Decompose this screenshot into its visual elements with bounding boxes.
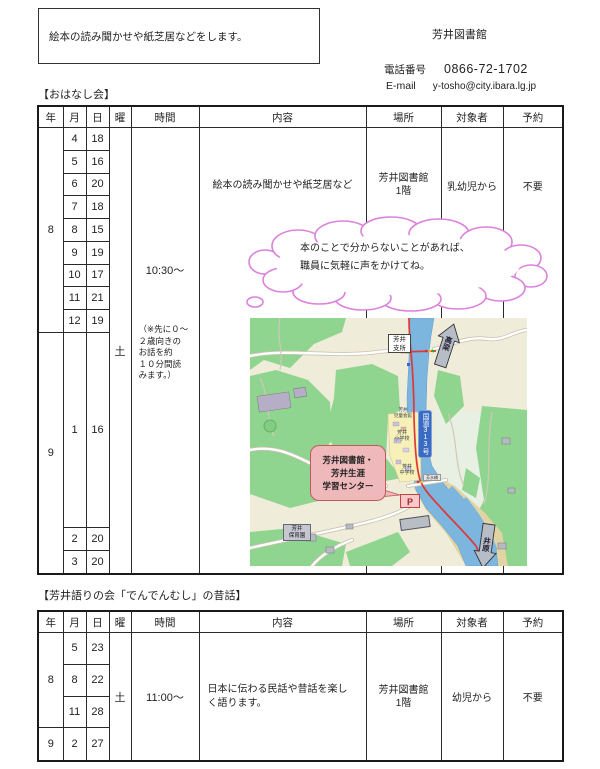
- col-time: 時間: [131, 611, 199, 633]
- email-address: y-tosho@city.ibara.lg.jp: [433, 81, 536, 92]
- route-313-text: 国道313号: [420, 413, 430, 455]
- month-cell: 11: [63, 696, 86, 728]
- page: { "header": { "notice_box": "絵本の読み聞かせや紙芝…: [0, 0, 600, 769]
- col-place: 場所: [366, 611, 441, 633]
- day-cell: 19: [86, 241, 109, 264]
- month-cell: 5: [63, 633, 86, 665]
- audience-cell: 幼児から: [441, 633, 503, 762]
- section-title-ohanashi: 【おはなし会】: [38, 86, 115, 102]
- content-cell: 日本に伝わる民話や昔話を楽し く語ります。: [199, 633, 366, 762]
- col-place: 場所: [366, 106, 441, 128]
- day-cell: 20: [86, 527, 109, 550]
- phone-row: 電話番号 0866-72-1702: [384, 62, 528, 77]
- month-cell: 10: [63, 264, 86, 287]
- junior-high-label: 芳井 中学校: [392, 464, 422, 476]
- denden-table: 年 月 日 曜 時間 内容 場所 対象者 予約 8 5 23 土 11:00～ …: [37, 610, 564, 762]
- month-cell: 3: [63, 550, 86, 574]
- parking-label: P: [400, 494, 420, 508]
- notice-text: 絵本の読み聞かせや紙芝居などをします。: [49, 29, 247, 44]
- to-ibara-arrow-label: 井原: [480, 536, 493, 552]
- month-cell: 2: [63, 728, 86, 761]
- audience-text: 乳幼児から: [442, 128, 503, 193]
- place-text: 芳井図書館 1階: [367, 128, 441, 198]
- month-cell: 12: [63, 310, 86, 333]
- content-text: 絵本の読み聞かせや紙芝居など: [200, 128, 366, 191]
- phone-number: 0866-72-1702: [444, 62, 528, 76]
- table-row: 8 5 23 土 11:00～ 日本に伝わる民話や昔話を楽し く語ります。 芳井…: [38, 633, 563, 665]
- year-cell: 9: [38, 332, 63, 574]
- library-callout: 芳井図書館・ 芳井生涯 学習センター: [310, 445, 386, 501]
- day-cell: 28: [86, 696, 109, 728]
- day-cell: 17: [86, 264, 109, 287]
- speech-cloud: 本のことで分からないことがあれば、 職員に気軽に声をかけてね。: [243, 214, 549, 314]
- col-reservation: 予約: [503, 611, 563, 633]
- day-cell: 21: [86, 287, 109, 310]
- day-cell: 27: [86, 728, 109, 761]
- library-name: 芳井図書館: [432, 26, 487, 42]
- month-cell: 4: [63, 128, 86, 151]
- month-cell: 11: [63, 287, 86, 310]
- col-content: 内容: [199, 611, 366, 633]
- section-title-denden: 【芳井語りの会「でんでんむし」の昔話】: [38, 587, 246, 603]
- branch-office-label: 芳井 支所: [388, 334, 411, 353]
- day-cell: 20: [86, 173, 109, 196]
- day-cell: 23: [86, 633, 109, 665]
- phone-label: 電話番号: [384, 62, 426, 77]
- notice-box: 絵本の読み聞かせや紙芝居などをします。: [38, 8, 320, 64]
- day-cell: 19: [86, 310, 109, 333]
- time-value: 10:30～: [132, 262, 199, 278]
- col-reservation: 予約: [503, 106, 563, 128]
- col-audience: 対象者: [441, 611, 503, 633]
- col-year: 年: [38, 611, 63, 633]
- time-cell: 11:00～: [131, 633, 199, 762]
- elementary-school-label: 芳井 小学校: [387, 430, 417, 442]
- time-cell: 10:30～ （※先に０～ ２歳向きの お話を約 １０分間読 みます。）: [131, 128, 199, 575]
- weekday-cell: 土: [109, 128, 131, 575]
- reservation-cell: 不要: [503, 633, 563, 762]
- col-time: 時間: [131, 106, 199, 128]
- col-month: 月: [63, 611, 86, 633]
- month-cell: 5: [63, 150, 86, 173]
- children-hall-label: 芳井 児童会館: [388, 407, 418, 418]
- email-row: E-mail y-tosho@city.ibara.lg.jp: [386, 80, 536, 92]
- col-day: 日: [86, 611, 109, 633]
- month-cell: 7: [63, 196, 86, 219]
- year-cell: 8: [38, 633, 63, 728]
- denden-header-row: 年 月 日 曜 時間 内容 場所 対象者 予約: [38, 611, 563, 633]
- year-cell: 8: [38, 128, 63, 333]
- time-note: （※先に０～ ２歳向きの お話を約 １０分間読 みます。）: [132, 324, 199, 382]
- month-cell: 8: [63, 664, 86, 696]
- day-cell: 16: [86, 332, 109, 527]
- day-cell: 20: [86, 550, 109, 574]
- year-cell: 9: [38, 728, 63, 761]
- access-map: 芳井 支所 国道313号 芳井 児童会館 芳井 小学校 芳井 中学校 芳水橋 芳…: [250, 318, 527, 566]
- col-day: 日: [86, 106, 109, 128]
- month-cell: 1: [63, 332, 86, 527]
- place-cell: 芳井図書館 1階: [366, 633, 441, 762]
- col-weekday: 曜: [109, 106, 131, 128]
- weekday-cell: 土: [109, 633, 131, 762]
- day-cell: 15: [86, 219, 109, 242]
- col-month: 月: [63, 106, 86, 128]
- month-cell: 6: [63, 173, 86, 196]
- cloud-text: 本のことで分からないことがあれば、 職員に気軽に声をかけてね。: [300, 240, 470, 275]
- col-year: 年: [38, 106, 63, 128]
- table-row: 8 4 18 土 10:30～ （※先に０～ ２歳向きの お話を約 １０分間読 …: [38, 128, 563, 151]
- reservation-text: 不要: [504, 128, 563, 193]
- day-cell: 16: [86, 150, 109, 173]
- month-cell: 2: [63, 527, 86, 550]
- day-cell: 18: [86, 196, 109, 219]
- email-label: E-mail: [386, 80, 416, 92]
- col-weekday: 曜: [109, 611, 131, 633]
- month-cell: 9: [63, 241, 86, 264]
- route-313-sign: 国道313号: [418, 410, 432, 458]
- nursery-label: 芳井 保育園: [283, 524, 311, 541]
- day-cell: 18: [86, 128, 109, 151]
- ohanashi-header-row: 年 月 日 曜 時間 内容 場所 対象者 予約: [38, 106, 563, 128]
- col-content: 内容: [199, 106, 366, 128]
- month-cell: 8: [63, 219, 86, 242]
- day-cell: 22: [86, 664, 109, 696]
- col-audience: 対象者: [441, 106, 503, 128]
- bridge-label: 芳水橋: [423, 474, 441, 481]
